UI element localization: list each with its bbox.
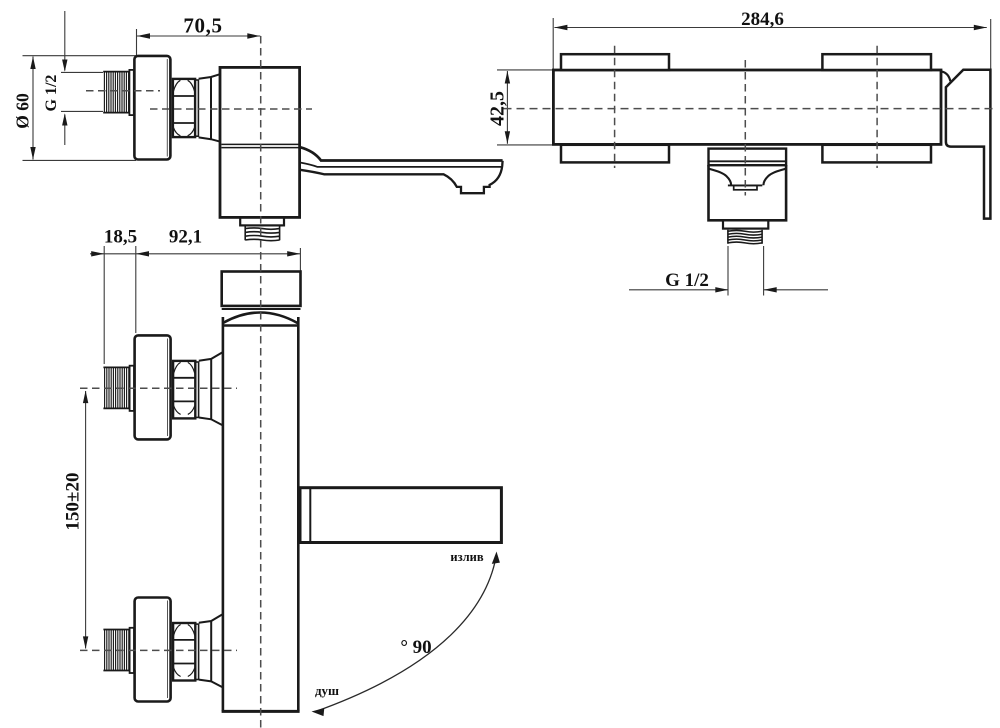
svg-text:18,5: 18,5 xyxy=(104,227,137,248)
svg-text:Ø 60: Ø 60 xyxy=(13,93,33,129)
svg-text:92,1: 92,1 xyxy=(169,227,202,248)
svg-text:284,6: 284,6 xyxy=(741,9,784,30)
svg-text:излив: излив xyxy=(450,550,483,564)
svg-text:G 1/2: G 1/2 xyxy=(665,270,709,291)
svg-text:G 1/2: G 1/2 xyxy=(43,75,60,112)
svg-text:душ: душ xyxy=(315,683,339,698)
svg-text:° 90: ° 90 xyxy=(400,637,431,658)
svg-text:70,5: 70,5 xyxy=(183,14,222,38)
svg-text:150±20: 150±20 xyxy=(63,473,84,531)
